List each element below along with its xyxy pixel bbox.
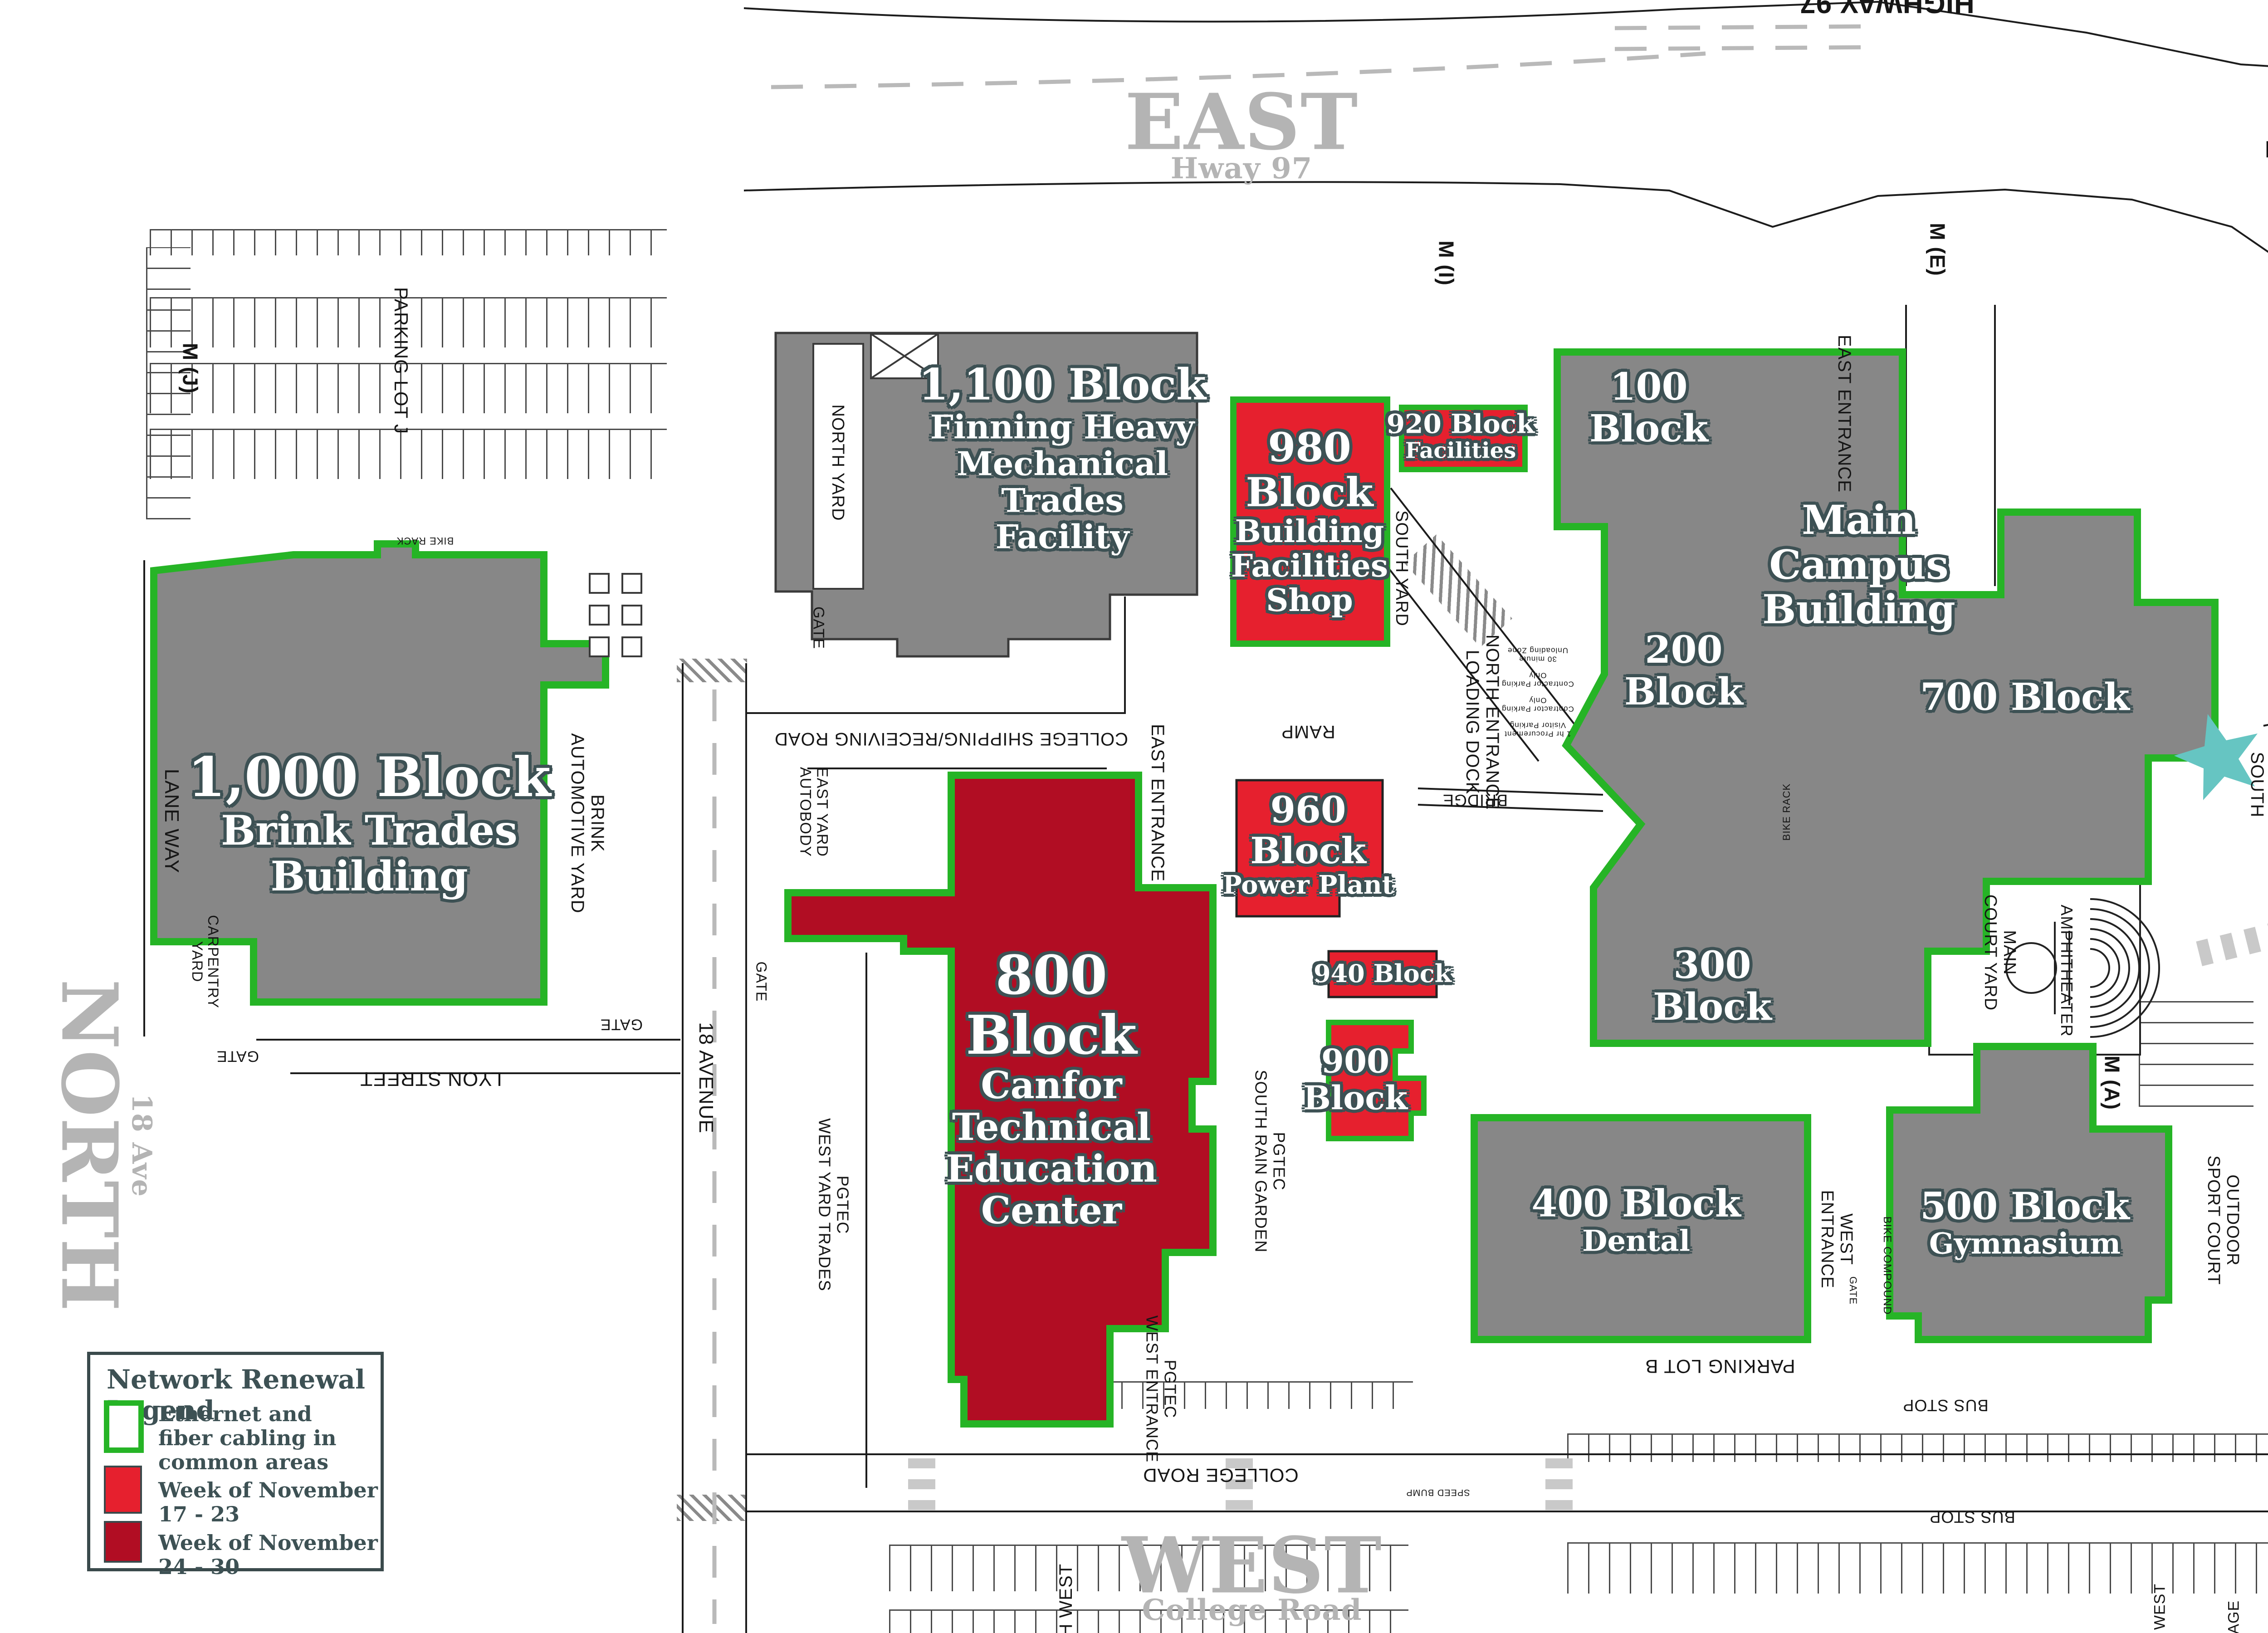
building-700-block-label: 700 Block <box>1920 677 2130 719</box>
brink-automotive-yard-label: BRINK AUTOMOTIVE YARD <box>567 733 607 913</box>
direction-east-sub: Hway 97 <box>1171 153 1313 185</box>
east-yard-autobody-label: EAST YARD AUTOBODY <box>797 767 831 857</box>
zone-contractor-label: Contractor Parking Only <box>1499 671 1576 688</box>
pgtec-west-fragment-label: C WEST <box>2151 1584 2168 1633</box>
direction-north-sub: 18 Ave <box>127 1094 156 1197</box>
gate-label: GATE <box>216 1047 259 1064</box>
gate-label: GATE <box>810 606 826 649</box>
building-main-campus-label: Main Campus Building <box>1762 498 1955 632</box>
lot-me-label: M (E) <box>1926 223 1949 276</box>
building-980-block-label: 980 Block Building Facilities Shop <box>1231 425 1388 618</box>
zone-procurement-label: 1 hr Procurement Visitor Parking <box>1497 721 1579 738</box>
pgtec-south-rain-garden-label: PGTEC SOUTH RAIN GARDEN <box>1252 1070 1288 1252</box>
building-1000-block-label: 1,000 Block Brink Trades Building <box>188 747 551 900</box>
building-1100-block-label: 1,100 Block Finning Heavy Mechanical Tra… <box>919 361 1206 556</box>
speed-bump-label: SPEED BUMP <box>1406 1487 1470 1497</box>
northwest-fragment-label: RTH WEST <box>1056 1564 1076 1633</box>
highway-97-label: HIGHWAY 97 <box>1799 0 1975 18</box>
building-100-block-label: 100 Block <box>1589 367 1708 450</box>
amphitheater-label: AMPHITHEATER <box>2058 905 2076 1037</box>
main-court-yard-label: MAIN COURT YARD <box>1980 895 2019 1011</box>
legend-item-week-nov-17-23: Week of November 17 - 23 <box>158 1478 381 1526</box>
north-entrance-loading-dock-label: NORTH ENTRANCE LOADING DOCK <box>1462 635 1502 810</box>
lot-mj-label: M (J) <box>179 343 202 394</box>
lot-mi-label: M (I) <box>1435 240 1458 286</box>
direction-west-sub: College Road <box>1142 1594 1362 1626</box>
building-960-block-label: 960 Block Power Plant <box>1222 790 1393 900</box>
bus-stop-label: BUS STOP <box>1902 1396 1988 1414</box>
pgtec-west-entrance-label: PGTEC WEST ENTRANCE <box>1143 1315 1179 1462</box>
building-400-block-label: 400 Block Dental <box>1531 1183 1741 1257</box>
bridge-label: BRIDGE <box>1442 791 1508 809</box>
legend-item-common-areas: Ethernet and fiber cabling in common are… <box>158 1402 362 1474</box>
lane-way-label: LANE WAY <box>161 769 182 874</box>
main-entrance-south-label: MAIN ENTRANCE SOUTH <box>2247 707 2268 863</box>
building-940-block-label: 940 Block <box>1314 960 1452 987</box>
building-500-block-label: 500 Block Gymnasium <box>1920 1186 2130 1260</box>
building-800-block-label: 800 Block Canfor Technical Education Cen… <box>946 945 1157 1232</box>
pgtec-west-yard-trades-label: PGTEC WEST YARD TRADES <box>816 1118 851 1291</box>
bike-compound-label: BIKE COMPOUND <box>1881 1216 1893 1315</box>
18-avenue-label: 18 AVENUE <box>695 1022 717 1133</box>
west-entrance-label: WEST ENTRANCE <box>1817 1190 1855 1288</box>
ramp-label: RAMP <box>1281 722 1335 742</box>
east-entrance-label: EAST ENTRANCE <box>1834 335 1854 493</box>
gate-label: GATE <box>600 1016 643 1032</box>
direction-north: NORTH <box>47 979 132 1312</box>
north-yard-label: NORTH YARD <box>828 404 847 521</box>
building-900-block-label: 900 Block <box>1303 1043 1408 1116</box>
campus-map: E S W N EAST Hway 97 SOUTH 22 Ave NORTH … <box>0 0 2268 1633</box>
storage-fragment-label: RAGE <box>2225 1600 2242 1633</box>
building-300-block-label: 300 Block <box>1653 945 1772 1028</box>
compass-n-label: N <box>2265 136 2268 163</box>
gate-label: GATE <box>753 962 769 1002</box>
parking-lot-b-label: PARKING LOT B <box>1645 1356 1795 1377</box>
building-200-block-label: 200 Block <box>1624 630 1743 713</box>
zone-contractor-label: Contractor Parking Only <box>1499 696 1576 713</box>
lyon-street-label: LYON STREET <box>360 1068 502 1090</box>
parking-lot-j-label: PARKING LOT J <box>391 287 411 434</box>
legend-item-week-nov-24-30: Week of November 24 - 30 <box>158 1531 381 1579</box>
outdoor-sport-court-label: OUTDOOR SPORT COURT <box>2204 1155 2242 1285</box>
legend-swatch-week-nov-24-30 <box>104 1521 142 1563</box>
college-shipping-road-label: COLLEGE SHIPPING/RECEIVING ROAD <box>774 729 1128 749</box>
small-structures <box>590 574 641 656</box>
bike-rack-label: BIKE RACK <box>396 535 454 546</box>
network-renewal-legend: Network Renewal Legend Ethernet and fibe… <box>87 1352 384 1571</box>
bike-rack-label: BIKE RACK <box>1781 783 1792 841</box>
college-road-label: COLLEGE ROAD <box>1143 1465 1298 1486</box>
lot-ma-label: M (A) <box>2101 1056 2124 1110</box>
south-yard-label: SOUTH YARD <box>1392 510 1411 626</box>
zone-unloading-label: 30 minute Unloading Zone <box>1499 646 1576 663</box>
bus-stop-label: BUS STOP <box>1929 1508 2015 1526</box>
building-920-block-label: 920 Block Facilities <box>1387 410 1535 464</box>
legend-swatch-common-areas <box>104 1400 144 1453</box>
carpentry-yard-label: CARPENTRY YARD <box>189 915 221 1008</box>
east-entrance-pgtec-label: EAST ENTRANCE <box>1148 724 1168 882</box>
gate-label: GATE <box>1848 1276 1858 1305</box>
legend-swatch-week-nov-17-23 <box>104 1466 142 1514</box>
